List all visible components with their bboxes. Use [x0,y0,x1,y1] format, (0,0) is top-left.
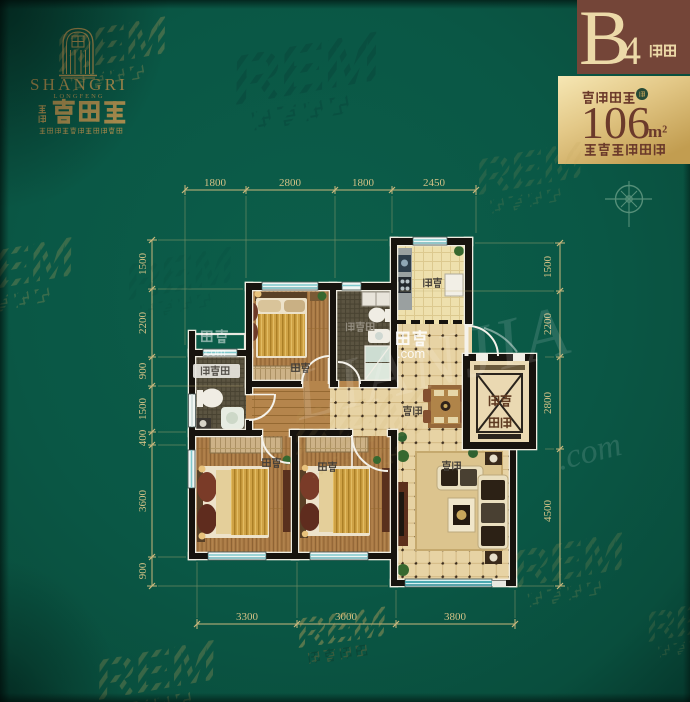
svg-text:.com: .com [397,346,425,361]
svg-text:3600: 3600 [137,490,149,513]
svg-text:1800: 1800 [204,177,227,189]
svg-text:2800: 2800 [542,392,554,415]
svg-text:.com: .com [202,347,226,359]
svg-text:106: 106 [581,97,650,148]
svg-text:2800: 2800 [279,177,302,189]
svg-text:1500: 1500 [137,398,149,421]
svg-text:1800: 1800 [352,177,375,189]
svg-text:2450: 2450 [423,177,446,189]
svg-text:4500: 4500 [542,500,554,523]
svg-text:900: 900 [137,562,149,579]
svg-text:m²: m² [648,122,667,141]
svg-text:1500: 1500 [542,256,554,279]
svg-text:3800: 3800 [444,611,467,623]
svg-text:400: 400 [137,429,149,446]
svg-text:900: 900 [137,362,149,379]
svg-text:3300: 3300 [236,611,259,623]
svg-text:4: 4 [621,28,641,73]
